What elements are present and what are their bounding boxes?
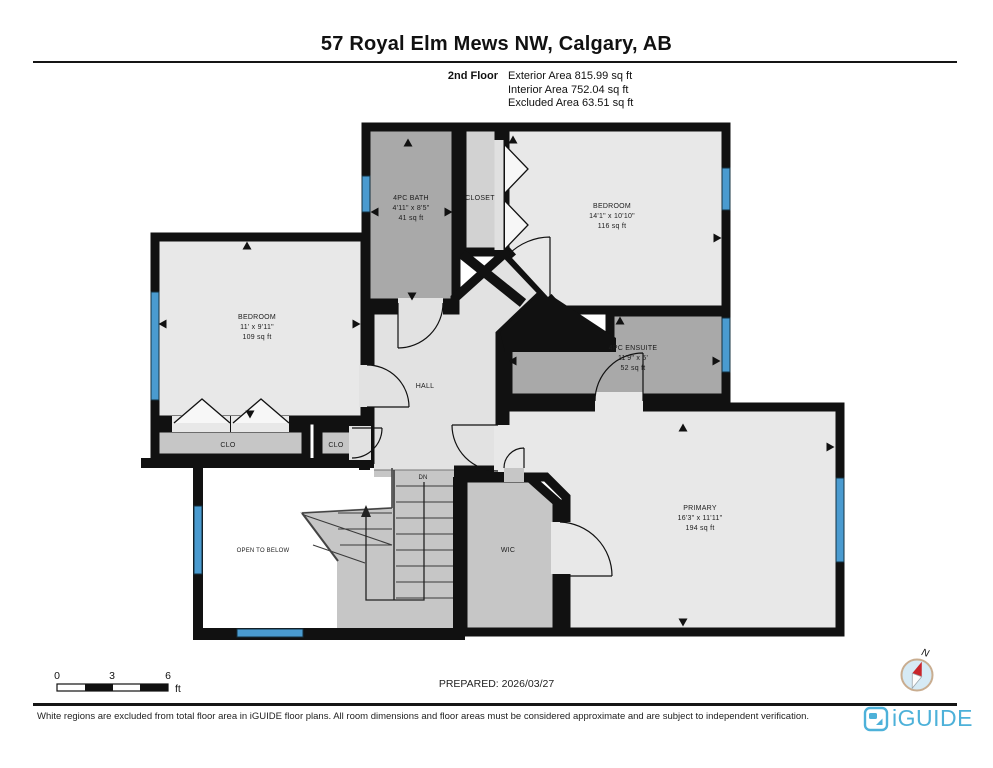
floorplan-drawing: 4PC BATH 4'11" x 8'5" 41 sq ft CLOSET BE… [0, 0, 993, 768]
iguide-logo-icon [863, 706, 889, 732]
iguide-logo: iGUIDE [863, 705, 973, 732]
hall-label: HALL [416, 383, 435, 390]
window-bath [362, 176, 370, 212]
footer-divider [33, 703, 957, 706]
disclaimer-text: White regions are excluded from total fl… [37, 711, 827, 722]
stairs-dn-label: DN [418, 475, 427, 481]
primary-area: 194 sq ft [685, 525, 714, 532]
room-wic-floor [463, 478, 557, 632]
floorplan-page: 57 Royal Elm Mews NW, Calgary, AB 2nd Fl… [0, 0, 993, 768]
window-ensuite [722, 318, 730, 372]
bedroom2-label: BEDROOM [593, 203, 631, 210]
room-closet-floor [462, 127, 499, 252]
window-bedroom2 [722, 168, 730, 210]
window-primary [836, 478, 844, 562]
bath-label: 4PC BATH [393, 195, 429, 202]
bedroom2-area: 116 sq ft [598, 223, 627, 230]
ensuite-label: 4PC ENSUITE [609, 345, 658, 352]
window-open-below-bottom [237, 629, 303, 637]
ensuite-area: 52 sq ft [621, 365, 646, 372]
bedroom1-area: 109 sq ft [242, 334, 271, 341]
window-bedroom1 [151, 292, 159, 400]
ensuite-dims: 11'9" x 5' [618, 355, 648, 362]
primary-dims: 16'3" x 11'11" [678, 515, 723, 522]
prepared-date: PREPARED: 2026/03/27 [0, 678, 993, 690]
bedroom1-label: BEDROOM [238, 314, 276, 321]
clo-left-label: CLO [220, 442, 235, 449]
iguide-logo-text: iGUIDE [892, 705, 973, 732]
bath-area: 41 sq ft [399, 215, 424, 222]
wic-label: WIC [501, 547, 515, 554]
window-open-below-left [194, 506, 202, 574]
primary-label: PRIMARY [683, 505, 717, 512]
bedroom2-dims: 14'1" x 10'10" [589, 213, 635, 220]
compass-north-label: N [920, 647, 931, 660]
clo-right-label: CLO [328, 442, 343, 449]
bath-dims: 4'11" x 8'5" [393, 205, 430, 212]
bedroom1-dims: 11' x 9'11" [240, 324, 274, 331]
open-below-label: OPEN TO BELOW [237, 548, 290, 554]
closet-label: CLOSET [465, 195, 495, 202]
